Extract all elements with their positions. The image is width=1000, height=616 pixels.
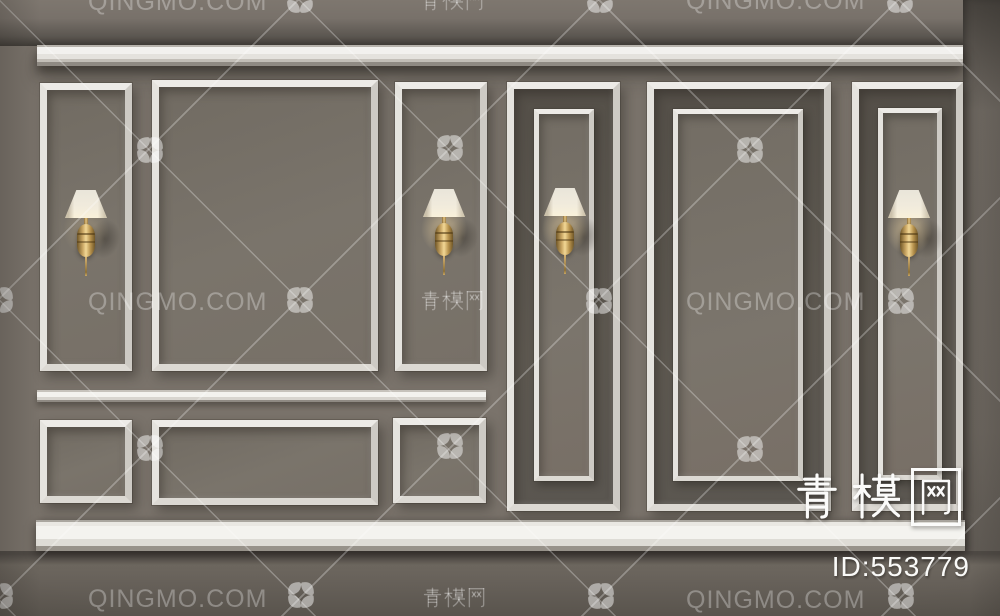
watermark-text: QINGMO.COM [88, 288, 267, 317]
qingmo-logo-icon [586, 581, 616, 611]
lamp-brass-body [77, 224, 95, 257]
wall-sconce-3 [543, 188, 587, 278]
lamp-shade [544, 188, 586, 216]
watermark-text-cn [420, 0, 485, 11]
dado-panel-1 [40, 420, 132, 503]
lamp-shade [888, 190, 930, 218]
qingmo-logo-icon [435, 133, 465, 163]
lamp-stem [908, 257, 910, 276]
qingmo-logo-icon [285, 285, 315, 315]
wall-sconce-4 [887, 190, 931, 280]
qingmo-logo-icon [135, 135, 165, 165]
brand-char-wang-box [911, 468, 961, 526]
qingmo-logo-icon [585, 0, 615, 15]
brand-char-mo [852, 466, 900, 526]
qingmo-logo-icon [0, 285, 15, 315]
qingmo-logo-icon [885, 0, 915, 15]
watermark-text: QINGMO.COM [686, 586, 865, 615]
lamp-brass-body [435, 223, 453, 256]
lamp-stem [85, 257, 87, 276]
brand-char-wang [917, 474, 955, 520]
lamp-brass-body [900, 224, 918, 257]
qingmo-logo-icon [285, 0, 315, 15]
qingmo-logo-icon [735, 135, 765, 165]
lamp-stem [564, 255, 566, 274]
wall-sconce-1 [64, 190, 108, 280]
render-canvas: QINGMO.COM QINGMO.COM QINGMO.COM QINGMO.… [0, 0, 1000, 616]
watermark-text-cn [420, 290, 485, 311]
watermark-text: QINGMO.COM [88, 0, 267, 17]
brand-char-qing [793, 466, 841, 526]
qingmo-logo-icon [286, 580, 316, 610]
crown-molding [37, 45, 963, 66]
right-wall-strip [963, 0, 1000, 616]
lamp-shade [423, 189, 465, 217]
qingmo-logo-icon [886, 581, 916, 611]
qingmo-logo-icon [0, 581, 15, 611]
lamp-shade [65, 190, 107, 218]
watermark-text: QINGMO.COM [88, 585, 267, 614]
site-logo [793, 466, 961, 526]
lamp-stem [443, 256, 445, 275]
chair-rail [37, 390, 486, 402]
watermark-text: QINGMO.COM [686, 0, 865, 16]
dado-panel-2 [152, 420, 378, 505]
wainscot-panel-left-large [152, 80, 378, 371]
model-id-badge: ID:553779 [832, 551, 970, 583]
qingmo-logo-icon [135, 433, 165, 463]
wall-sconce-2 [422, 189, 466, 279]
lamp-brass-body [556, 222, 574, 255]
watermark-text-cn [422, 587, 487, 608]
qingmo-logo-icon [886, 286, 916, 316]
qingmo-logo-icon [584, 286, 614, 316]
qingmo-logo-icon [435, 431, 465, 461]
watermark-text: QINGMO.COM [686, 288, 865, 317]
qingmo-logo-icon [735, 434, 765, 464]
